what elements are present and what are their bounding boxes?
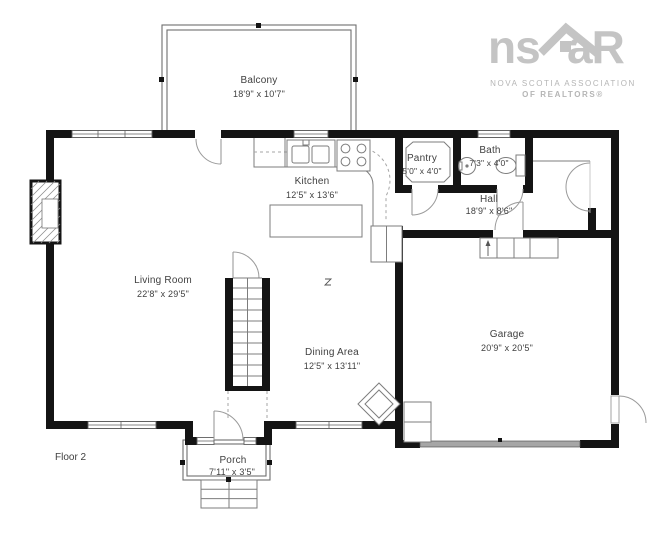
kitchen-label: Kitchen 12'5" x 13'6" <box>286 176 338 200</box>
logo-text-ar: aR <box>567 21 625 73</box>
living-room-dims: 22'8" x 29'5" <box>137 289 189 299</box>
wood-stove <box>358 383 400 425</box>
logo-caption-2: OF REALTORS® <box>522 90 604 99</box>
garage-name: Garage <box>490 329 525 340</box>
hall-dims: 18'9" x 8'6" <box>466 206 513 216</box>
porch-dims: 7'11" x 3'5" <box>209 467 255 477</box>
hall-label: Hall 18'9" x 8'6" <box>466 194 513 216</box>
symbol-mark <box>325 279 331 285</box>
exterior-walls <box>46 130 619 448</box>
floorplan-canvas: Balcony 18'9" x 10'7" Kitchen 12'5" x 13… <box>0 0 669 539</box>
kitchen-name: Kitchen <box>295 176 330 187</box>
bath-label: Bath 7'3" x 4'0" <box>469 145 508 168</box>
living-room-label: Living Room 22'8" x 29'5" <box>134 275 192 299</box>
garage-label: Garage 20'9" x 20'5" <box>481 329 533 353</box>
balcony-dims: 18'9" x 10'7" <box>233 89 285 99</box>
logo-text-ns: ns <box>488 21 540 73</box>
windows <box>72 131 510 445</box>
balcony-name: Balcony <box>241 75 278 86</box>
dining-area-dims: 12'5" x 13'11" <box>304 361 361 371</box>
kitchen-sink <box>287 140 335 167</box>
garage-platform <box>404 402 431 442</box>
pantry-dims: 5'0" x 4'0" <box>402 166 441 176</box>
pantry-name: Pantry <box>407 153 437 164</box>
garage-overhead-door <box>420 438 580 447</box>
stove <box>337 140 370 171</box>
pantry-label: Pantry 5'0" x 4'0" <box>402 153 441 176</box>
garage-dims: 20'9" x 20'5" <box>481 343 533 353</box>
porch-name: Porch <box>219 455 246 466</box>
hall-name: Hall <box>480 194 498 205</box>
refrigerator <box>371 226 402 262</box>
living-room-name: Living Room <box>134 275 192 286</box>
kitchen-dims: 12'5" x 13'6" <box>286 190 338 200</box>
fireplace <box>31 181 60 243</box>
bath-name: Bath <box>479 145 500 156</box>
garage-steps <box>480 238 558 258</box>
dining-area-label: Dining Area 12'5" x 13'11" <box>304 347 361 371</box>
bath-dims: 7'3" x 4'0" <box>469 158 508 168</box>
kitchen-island <box>270 205 362 237</box>
stairs <box>228 278 267 421</box>
floor-label: Floor 2 <box>55 452 87 463</box>
nsar-logo: ns aR NOVA SCOTIA ASSOCIATION OF REALTOR… <box>488 21 636 99</box>
logo-caption-1: NOVA SCOTIA ASSOCIATION <box>490 79 636 88</box>
porch-steps <box>201 477 257 508</box>
dining-area-name: Dining Area <box>305 347 359 358</box>
